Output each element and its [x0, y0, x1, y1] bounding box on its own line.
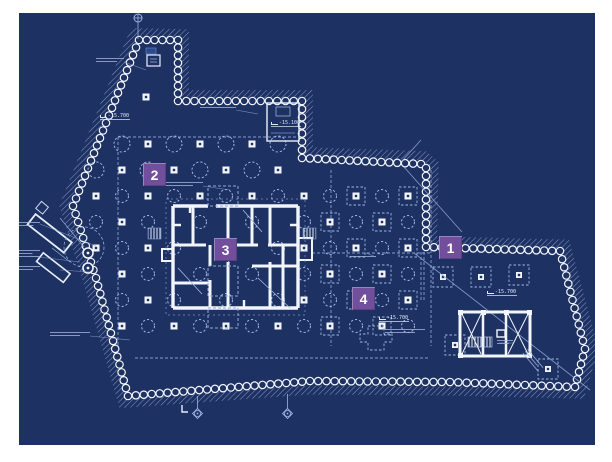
elevation-label-4: -15.700	[379, 315, 409, 322]
annotation-marker-4[interactable]: 4	[352, 287, 375, 310]
survey-marker-bottom-right	[283, 394, 293, 418]
bench-tick	[182, 405, 188, 412]
annotation-marker-2[interactable]: 2	[143, 163, 166, 186]
elevation-label-3: -15.700	[487, 289, 517, 296]
core-structure	[458, 310, 532, 358]
screenshot-page: 1 2 3 4 -15.700 -15.100 -15.700 -15.700	[0, 0, 612, 462]
blueprint-drawing	[19, 13, 595, 445]
elevation-label-1: -15.700	[100, 113, 130, 120]
excavation-hatch-band	[64, 33, 594, 404]
annotation-marker-3[interactable]: 3	[214, 238, 237, 261]
secant-pile-wall-chain	[69, 36, 588, 399]
blueprint-canvas: 1 2 3 4 -15.700 -15.100 -15.700 -15.700	[19, 13, 595, 445]
elevation-label-2: -15.100	[271, 120, 301, 127]
annotation-marker-1[interactable]: 1	[439, 236, 462, 259]
